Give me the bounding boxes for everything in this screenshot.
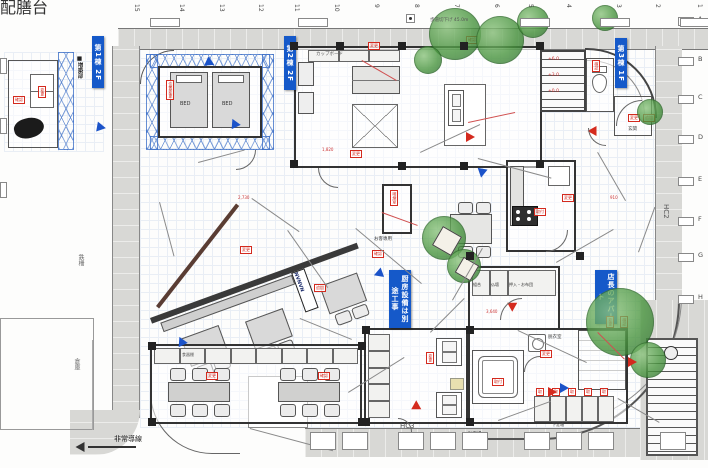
grid-column-label: 4 [565,4,572,8]
annotation-stamp: 取 [600,388,608,396]
grid-row-tab [678,177,694,186]
prep-box [450,378,464,390]
grid-column-label: 10 [333,4,340,12]
annotation-stamp: 確認 [13,96,25,104]
wall-pillar [290,160,298,168]
wall-pillar [148,418,156,426]
annotation-text: 3,640 [486,310,497,314]
road-sign-box [600,18,630,27]
island-divider [352,80,400,81]
grid-column-label: 2 [654,4,661,8]
closet-cell-label: 組合 [473,282,481,287]
dining-chair [192,404,208,417]
scaffold-truss-right [262,54,274,150]
locker-row [534,396,614,422]
utility-pole-dot [409,17,412,20]
tree [414,46,442,74]
floor-hatch [352,104,398,148]
wall-pillar [358,342,366,350]
scaffold-truss-bottom [150,136,270,150]
grid-column-label: 1 [696,4,703,8]
annotation-stamp: 変更 [540,350,552,358]
annotation-stamp: 喫煙室 [390,190,398,206]
annotation-text: ■増築部 [76,56,82,79]
road-sign-box [298,18,328,27]
annotation-stamp: 確認 [318,372,330,380]
grid-column-label: 15 [133,4,140,12]
wall-pillar [460,42,468,50]
annotation-stamp: 取 [584,388,592,396]
grid-column-label: 13 [218,4,225,12]
range [298,92,314,114]
parking-stall [588,432,614,450]
direction-arrow [466,132,475,142]
dining-chair [302,368,318,381]
closet-cell-label: 押入・お布団 [509,282,533,287]
wall-pillar [362,326,370,334]
kitchen-sink [448,90,464,126]
wall-pillar [536,160,544,168]
grid-column-label: 7 [453,4,460,8]
grid-row-label: B [698,56,702,63]
annotation-text: +3.0 [548,74,559,79]
angled-chair [351,303,370,320]
grid-row-label: C [698,94,703,101]
direction-arrow [476,168,487,179]
cupboard-label: カップボード [316,53,343,58]
road-sign-box [680,18,708,27]
grid-column-label: 6 [493,4,500,8]
grid-row-label: H [698,294,703,301]
grid-column-label: 9 [373,4,380,8]
grid-column-label: 3 [615,4,622,8]
wall-pillar [466,418,474,426]
emergency-arrow-shaft [88,446,136,448]
grid-column-label: 11 [293,4,300,12]
annotation-text: HC2 [662,204,669,219]
annotation-text: +0.0 [548,90,559,95]
annotation-text: 脱衣室 [548,336,562,341]
serve-label: 配膳台 [0,0,48,16]
angled-chair [334,309,353,326]
scaffold-truss-left [146,54,158,150]
scaffold-truss-annex [58,52,74,150]
dining-chair [214,404,230,417]
parking-stall [398,432,424,450]
dining-chair [170,368,186,381]
dining-table-1 [168,382,230,402]
grid-row-label: G [698,252,703,259]
annotation-stamp: 位置変更 [166,80,174,100]
grid-row-tab [678,217,694,226]
emergency-label: 非常導線 [114,436,142,443]
galley-sink-1 [436,338,462,366]
pillow-2 [218,75,244,83]
closet-cell-label: 仏壇 [491,282,499,287]
wall-pillar [148,342,156,350]
annotation-text: 倉庫 [73,358,79,370]
wall-pillar [398,162,406,170]
garden-chair [476,202,491,214]
annotation-text: 1,820 [322,148,333,152]
annotation-stamp: 変更 [426,352,434,364]
adjacent-building [0,318,94,430]
road-sign-box [520,18,550,27]
wall-pillar [336,42,344,50]
west-path [112,46,140,418]
annotation-stamp: 変更 [350,150,362,158]
dining-chair [302,404,318,417]
section-marker [0,182,7,198]
road-sign-box [150,18,180,27]
annotation-text: 玄関 [628,128,637,133]
shelf-label: 食器棚 [182,353,194,357]
annotation-stamp: 変更 [240,246,252,254]
grid-column-label: 14 [178,4,185,12]
annotation-stamp: 変更 [562,194,574,202]
private-fridge [548,166,570,186]
annotation-stamp: 変更 [368,42,380,50]
direction-arrow [628,357,637,367]
wall-pillar [466,252,474,260]
wall-pillar [398,42,406,50]
section-marker [0,58,7,74]
revision-banner: 第1棟 2F [92,36,104,88]
floor-plan-canvas: BED BED カップボード 組合 仏壇 押入・お布団 NVNVN [0,0,708,468]
grid-row-tab [678,95,694,104]
annotation-stamp: 変更 [206,372,218,380]
parking-stall [342,432,368,450]
stair-landing-top [664,346,678,360]
parking-stall [462,432,488,450]
wall-pillar [466,326,474,334]
dining-table-2 [278,382,340,402]
closet-row: 組合 仏壇 押入・お布団 [472,270,556,296]
wall-pillar [358,418,366,426]
direction-arrow [560,383,569,393]
section-marker [0,118,7,134]
dining-chair [280,368,296,381]
annotation-stamp: 取 [568,388,576,396]
dining-chair [170,404,186,417]
annotation-stamp: 取付 [492,378,504,386]
annotation-text: 歩道切下げ 45.0m [430,19,468,24]
logo-text: NVNVN [292,272,304,293]
annotation-text: +6.0 [548,58,559,63]
dining-chair [280,404,296,417]
grid-row-tab [678,135,694,144]
fridge [298,62,314,86]
wall-pillar [576,252,584,260]
parking-stall [660,432,686,450]
parking-stall [430,432,456,450]
direction-arrow [96,122,107,133]
garden-chair [458,202,473,214]
annotation-stamp: 確認 [592,60,600,72]
parking-stall [556,432,582,450]
east-road [655,46,682,306]
bathtub [478,356,518,398]
parking-stall [310,432,336,450]
wall-pillar [536,42,544,50]
annotation-stamp: 追加 [314,284,326,292]
grid-row-tab [678,57,694,66]
bed-1-label: BED [180,102,190,107]
galley-sink-2 [436,392,462,418]
grid-row-label: F [698,216,702,223]
annotation-text: 2,730 [238,196,249,200]
grid-row-tab [678,253,694,262]
adjacent-building-wing [92,340,93,430]
annotation-text: 下足箱 [552,423,564,427]
annotation-stamp: 取付 [534,208,546,216]
revision-banner: 厨房設備は別途工事 [389,270,411,328]
dining-chair [324,404,340,417]
annotation-text: 910 [610,196,618,200]
direction-arrow [411,400,421,409]
grid-column-label: 5 [527,4,534,8]
revision-banner: 第3棟 1F [615,38,627,88]
grid-row-tab [678,295,694,304]
grid-row-label: E [698,176,702,183]
wall-pillar [290,42,298,50]
annotation-stamp: 変更 [38,86,46,98]
grid-column-label: 12 [257,4,264,12]
wall-pillar [460,162,468,170]
annotation-text: お客専用 [374,238,392,243]
emergency-arrow-head [76,442,85,452]
parking-stall [524,432,550,450]
annotation-text: 鉄柵 [77,254,83,266]
direction-arrow [548,387,557,397]
stairs [540,50,586,112]
annotation-stamp: 取 [536,388,544,396]
grid-column-label: 8 [413,4,420,8]
bed-2-label: BED [222,102,232,107]
grid-row-label: D [698,134,703,141]
pillow-1 [176,75,202,83]
